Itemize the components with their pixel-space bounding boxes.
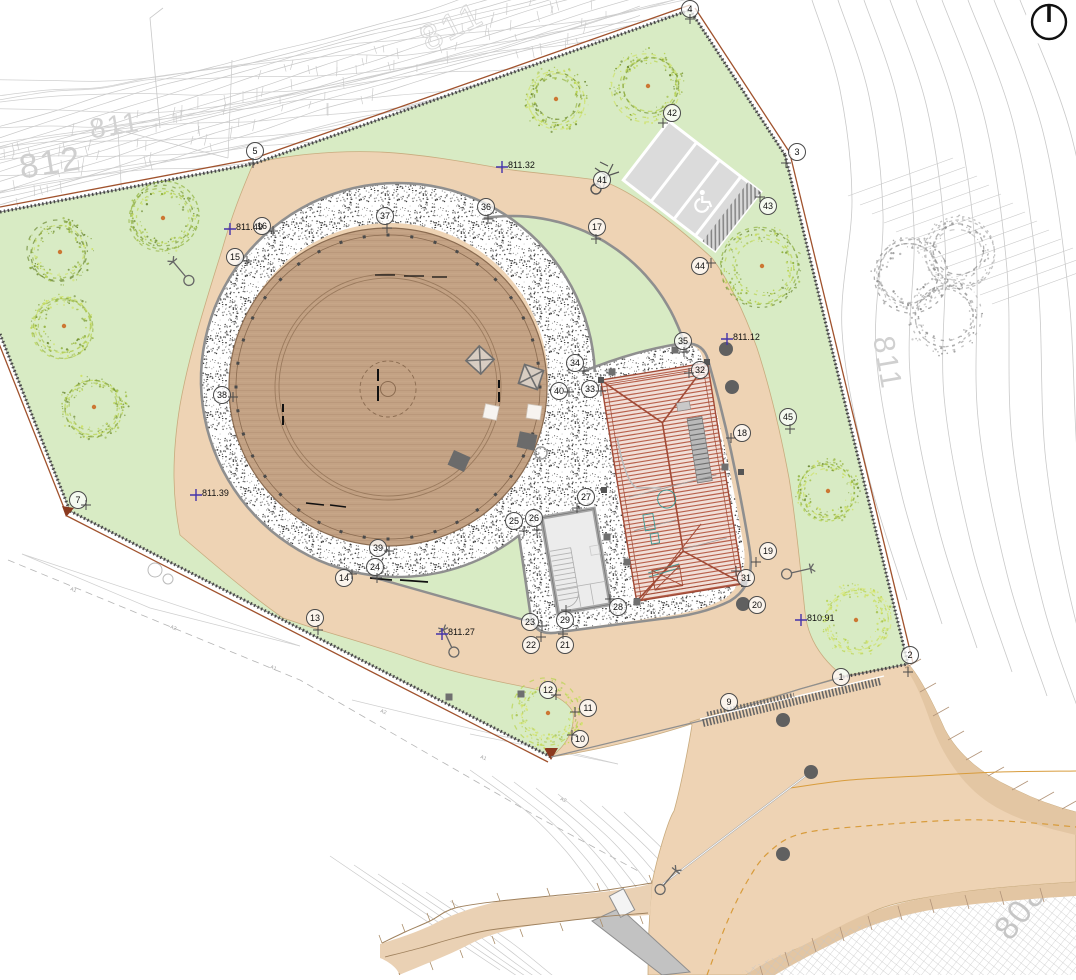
svg-text:45: 45 — [783, 412, 793, 422]
svg-text:5: 5 — [252, 146, 257, 156]
svg-text:811.49: 811.49 — [236, 222, 263, 232]
svg-text:44: 44 — [695, 261, 705, 271]
svg-text:810.91: 810.91 — [807, 613, 835, 623]
svg-text:38: 38 — [217, 390, 227, 400]
svg-text:10: 10 — [575, 734, 585, 744]
svg-text:32: 32 — [695, 365, 705, 375]
svg-text:22: 22 — [526, 640, 536, 650]
svg-text:21: 21 — [560, 640, 570, 650]
svg-text:14: 14 — [339, 573, 349, 583]
svg-text:35: 35 — [678, 336, 688, 346]
svg-text:811.39: 811.39 — [202, 488, 229, 498]
svg-text:31: 31 — [741, 573, 751, 583]
svg-text:20: 20 — [752, 600, 762, 610]
svg-text:3: 3 — [794, 147, 799, 157]
svg-text:40: 40 — [554, 386, 564, 396]
svg-text:811.32: 811.32 — [508, 160, 535, 170]
svg-text:23: 23 — [525, 617, 535, 627]
svg-text:2: 2 — [907, 650, 912, 660]
svg-text:43: 43 — [763, 201, 773, 211]
svg-text:41: 41 — [597, 175, 607, 185]
svg-text:9: 9 — [726, 697, 731, 707]
svg-text:15: 15 — [230, 252, 240, 262]
svg-text:4: 4 — [687, 4, 692, 14]
svg-text:39: 39 — [373, 543, 383, 553]
svg-text:29: 29 — [560, 615, 570, 625]
svg-text:25: 25 — [509, 516, 519, 526]
svg-text:36: 36 — [481, 202, 491, 212]
svg-text:13: 13 — [310, 613, 320, 623]
svg-text:27: 27 — [581, 492, 591, 502]
svg-text:26: 26 — [529, 513, 539, 523]
svg-text:18: 18 — [737, 428, 747, 438]
svg-text:42: 42 — [667, 108, 677, 118]
svg-text:811.12: 811.12 — [733, 332, 760, 342]
svg-text:17: 17 — [592, 222, 602, 232]
svg-text:28: 28 — [613, 602, 623, 612]
svg-text:7: 7 — [75, 495, 80, 505]
svg-text:34: 34 — [570, 358, 580, 368]
svg-text:1: 1 — [838, 672, 843, 682]
svg-text:24: 24 — [370, 562, 380, 572]
svg-text:811.27: 811.27 — [448, 627, 475, 637]
svg-text:11: 11 — [583, 703, 592, 713]
svg-text:12: 12 — [543, 685, 553, 695]
svg-text:37: 37 — [380, 211, 390, 221]
svg-text:19: 19 — [763, 546, 773, 556]
svg-text:33: 33 — [585, 384, 595, 394]
